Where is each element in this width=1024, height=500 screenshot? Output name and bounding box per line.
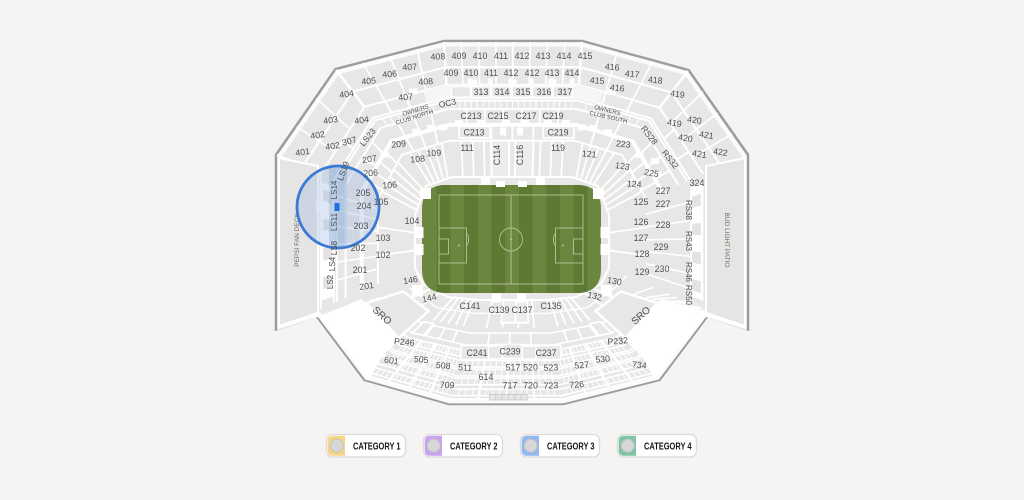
svg-text:LS8: LS8: [330, 240, 339, 255]
svg-text:407: 407: [402, 62, 417, 73]
svg-text:409: 409: [452, 51, 467, 61]
svg-text:413: 413: [545, 68, 560, 78]
svg-text:417: 417: [625, 68, 641, 79]
svg-text:315: 315: [516, 87, 531, 97]
svg-text:414: 414: [557, 51, 572, 61]
svg-text:404: 404: [354, 114, 370, 126]
svg-text:C213: C213: [463, 128, 484, 138]
svg-text:C239: C239: [499, 347, 520, 357]
svg-text:401: 401: [295, 146, 311, 158]
svg-text:407: 407: [398, 91, 414, 102]
svg-text:111: 111: [460, 143, 473, 153]
svg-text:422: 422: [712, 146, 728, 158]
svg-text:CATEGORY 1: CATEGORY 1: [353, 442, 401, 453]
svg-text:109: 109: [426, 148, 441, 159]
svg-text:121: 121: [582, 148, 598, 159]
svg-text:105: 105: [374, 197, 389, 207]
svg-text:405: 405: [361, 75, 377, 86]
svg-text:125: 125: [634, 197, 649, 207]
svg-text:LS14: LS14: [330, 180, 339, 199]
svg-text:413: 413: [536, 51, 551, 61]
svg-text:P232: P232: [607, 335, 628, 347]
svg-text:C241: C241: [466, 348, 487, 358]
svg-text:403: 403: [323, 114, 339, 126]
svg-text:511: 511: [458, 362, 473, 373]
svg-text:410: 410: [473, 51, 488, 61]
svg-text:402: 402: [325, 140, 341, 152]
svg-text:LS11: LS11: [330, 212, 339, 231]
svg-text:411: 411: [494, 51, 508, 61]
svg-text:505: 505: [414, 354, 430, 365]
svg-text:517: 517: [506, 363, 521, 373]
svg-text:734: 734: [631, 359, 647, 370]
svg-text:313: 313: [474, 87, 489, 97]
svg-text:201: 201: [353, 265, 368, 275]
svg-text:421: 421: [691, 148, 707, 160]
svg-text:127: 127: [634, 233, 649, 243]
svg-text:412: 412: [515, 51, 530, 61]
svg-text:317: 317: [558, 87, 573, 97]
svg-text:530: 530: [595, 353, 611, 364]
svg-text:CATEGORY 4: CATEGORY 4: [644, 442, 692, 453]
svg-text:C141: C141: [459, 301, 480, 311]
svg-text:RS38: RS38: [684, 200, 693, 221]
svg-text:124: 124: [627, 178, 643, 189]
svg-text:P246: P246: [394, 336, 415, 348]
svg-text:415: 415: [578, 51, 593, 61]
svg-text:408: 408: [418, 76, 433, 87]
svg-text:206: 206: [363, 167, 379, 178]
svg-text:412: 412: [525, 68, 540, 78]
svg-text:C116: C116: [515, 145, 525, 165]
svg-text:104: 104: [405, 216, 420, 226]
svg-text:202: 202: [351, 243, 366, 253]
svg-text:204: 204: [357, 201, 372, 211]
svg-text:227: 227: [656, 199, 671, 209]
svg-text:119: 119: [551, 143, 565, 153]
svg-text:408: 408: [430, 51, 445, 62]
svg-text:414: 414: [565, 68, 580, 78]
svg-text:126: 126: [634, 217, 649, 227]
svg-text:RS50: RS50: [684, 285, 693, 306]
svg-text:230: 230: [655, 264, 670, 274]
svg-text:406: 406: [382, 68, 398, 79]
svg-text:527: 527: [574, 359, 590, 370]
svg-text:C137: C137: [511, 305, 532, 315]
svg-text:717: 717: [503, 381, 518, 391]
svg-text:412: 412: [504, 68, 519, 78]
svg-text:205: 205: [356, 188, 371, 198]
svg-text:CATEGORY 2: CATEGORY 2: [450, 442, 498, 453]
svg-text:123: 123: [614, 160, 630, 172]
svg-text:129: 129: [635, 267, 650, 277]
svg-text:128: 128: [635, 249, 650, 259]
svg-text:726: 726: [569, 379, 584, 390]
svg-text:C213: C213: [460, 111, 481, 121]
svg-text:614: 614: [479, 372, 494, 382]
svg-text:C215: C215: [487, 111, 508, 121]
svg-text:416: 416: [610, 82, 626, 93]
svg-text:410: 410: [464, 68, 479, 78]
svg-text:201: 201: [359, 280, 375, 292]
svg-text:CATEGORY 3: CATEGORY 3: [547, 442, 595, 453]
svg-text:709: 709: [440, 380, 455, 391]
svg-text:316: 316: [537, 87, 552, 97]
svg-text:415: 415: [590, 75, 605, 86]
svg-text:103: 103: [376, 233, 391, 243]
svg-text:108: 108: [410, 153, 426, 164]
svg-text:RS46: RS46: [684, 262, 693, 283]
svg-text:LS4: LS4: [328, 256, 337, 271]
svg-text:209: 209: [391, 138, 407, 149]
svg-text:C139: C139: [488, 305, 509, 315]
svg-text:409: 409: [444, 68, 459, 78]
svg-text:508: 508: [436, 360, 452, 371]
svg-text:C219: C219: [542, 111, 563, 121]
svg-text:420: 420: [686, 114, 702, 126]
svg-text:C217: C217: [515, 111, 536, 121]
svg-text:102: 102: [376, 250, 391, 260]
svg-text:411: 411: [484, 68, 498, 78]
svg-text:C114: C114: [492, 145, 502, 165]
svg-text:228: 228: [656, 220, 671, 230]
svg-text:C135: C135: [540, 301, 561, 311]
svg-text:420: 420: [677, 132, 693, 144]
svg-text:723: 723: [543, 380, 558, 391]
svg-text:229: 229: [654, 242, 669, 252]
svg-text:419: 419: [666, 117, 682, 129]
svg-text:601: 601: [383, 355, 399, 367]
svg-text:324: 324: [690, 178, 705, 188]
svg-text:523: 523: [543, 362, 558, 373]
svg-text:223: 223: [615, 138, 631, 149]
svg-text:418: 418: [647, 74, 663, 85]
svg-text:C237: C237: [535, 348, 556, 358]
svg-text:RS43: RS43: [684, 231, 693, 252]
svg-text:402: 402: [310, 129, 326, 141]
svg-text:520: 520: [523, 363, 538, 373]
svg-text:203: 203: [354, 221, 369, 231]
svg-text:720: 720: [523, 381, 538, 391]
svg-text:419: 419: [669, 88, 685, 100]
svg-text:227: 227: [656, 186, 671, 196]
svg-text:314: 314: [495, 87, 510, 97]
svg-text:106: 106: [382, 179, 398, 190]
svg-text:C219: C219: [547, 128, 568, 138]
svg-text:BUD LIGHT PATIO: BUD LIGHT PATIO: [723, 213, 730, 268]
svg-text:LS2: LS2: [326, 274, 335, 289]
svg-text:416: 416: [605, 61, 621, 72]
svg-text:404: 404: [339, 88, 355, 100]
svg-text:421: 421: [698, 129, 714, 141]
